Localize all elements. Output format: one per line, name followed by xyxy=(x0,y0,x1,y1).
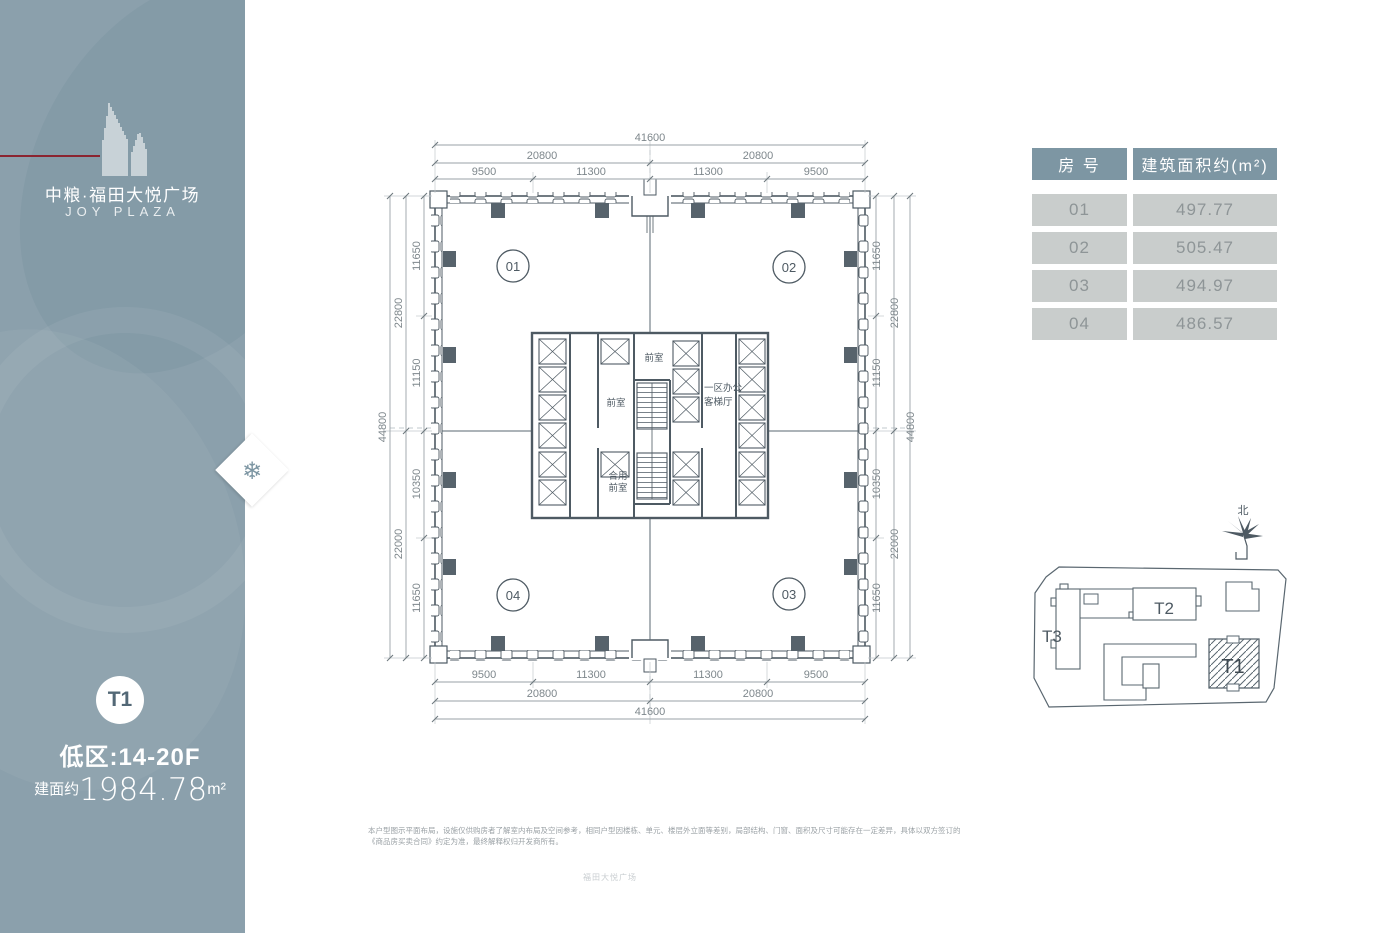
dim-right-mid-1: 22000 xyxy=(889,529,901,560)
podium-block xyxy=(1143,664,1159,688)
window-mullions-right xyxy=(858,211,869,647)
unit-area-table: 房 号 建筑面积约(m²) 01 497.77 02 505.47 03 494… xyxy=(1032,148,1278,346)
dim-top-overall: 41600 xyxy=(635,132,666,144)
table-cell-area: 505.47 xyxy=(1133,232,1277,264)
dim-left-inner-3: 11650 xyxy=(411,583,423,613)
dim-right-mid-0: 22800 xyxy=(889,298,901,329)
dim-bottom-inner-1: 11300 xyxy=(576,669,606,681)
dim-right-inner-0: 11650 xyxy=(871,241,883,271)
dim-bottom-inner-2: 11300 xyxy=(693,669,723,681)
unit-03-label: 03 xyxy=(782,587,796,602)
dim-bottom-mid-0: 20800 xyxy=(527,688,558,700)
north-arrow-icon: 北 xyxy=(1222,504,1263,559)
table-header-area: 建筑面积约(m²) xyxy=(1133,148,1277,180)
tower-t3-label: T3 xyxy=(1042,627,1062,646)
unit-01-label: 01 xyxy=(506,259,520,274)
dim-bottom-inner-3: 9500 xyxy=(804,669,828,681)
footer-note: 福田大悦广场 xyxy=(583,872,637,883)
table-cell-area: 486.57 xyxy=(1133,308,1277,340)
table-row: 04 486.57 xyxy=(1032,308,1278,340)
core-label-shared-front-2: 前室 xyxy=(608,482,627,494)
dim-top-inner-2: 11300 xyxy=(693,166,723,178)
core-label-office-lobby-2: 客梯厅 xyxy=(704,396,733,408)
dim-top-inner-3: 9500 xyxy=(804,166,828,178)
core-label-front-room-top: 前室 xyxy=(644,352,663,364)
dim-bottom-overall: 41600 xyxy=(635,706,666,718)
dim-top-inner-1: 11300 xyxy=(576,166,606,178)
tower-t1-label: T1 xyxy=(1221,656,1244,678)
dim-right-inner-3: 11650 xyxy=(871,583,883,613)
disclaimer-text: 本户型图示平面布局，设施仅供购房者了解室内布局及空间参考，相同户型因楼栋、单元、… xyxy=(368,825,968,847)
core-label-shared-front-1: 合用 xyxy=(608,470,627,482)
table-header-unit: 房 号 xyxy=(1032,148,1127,180)
dim-left-inner-1: 11150 xyxy=(411,359,423,388)
table-cell-area: 497.77 xyxy=(1133,194,1277,226)
dim-left-inner-0: 11650 xyxy=(411,241,423,271)
dim-left-inner-2: 10350 xyxy=(411,469,423,500)
table-cell-unit: 04 xyxy=(1032,308,1127,340)
dim-top-mid-0: 20800 xyxy=(527,150,558,162)
unit-02-label: 02 xyxy=(782,260,796,275)
dim-right-inner-1: 11150 xyxy=(871,359,883,388)
window-mullions-left xyxy=(431,211,442,647)
tower-t2-label: T2 xyxy=(1154,599,1174,618)
service-core: 前室 前室 合用 前室 一区办公 客梯厅 xyxy=(532,333,768,518)
table-cell-unit: 03 xyxy=(1032,270,1127,302)
table-row: 02 505.47 xyxy=(1032,232,1278,264)
dim-top-mid-1: 20800 xyxy=(743,150,774,162)
north-label: 北 xyxy=(1238,504,1249,517)
dim-left-mid-0: 22800 xyxy=(393,298,405,329)
table-row: 01 497.77 xyxy=(1032,194,1278,226)
dim-bottom-inner-0: 9500 xyxy=(472,669,496,681)
table-row: 03 494.97 xyxy=(1032,270,1278,302)
dim-left-overall: 44800 xyxy=(377,412,389,443)
floor-plan-drawing: 前室 前室 合用 前室 一区办公 客梯厅 01 02 03 04 xyxy=(0,0,1400,933)
core-label-front-room-mid: 前室 xyxy=(606,397,625,409)
core-label-office-lobby-1: 一区办公 xyxy=(704,382,743,394)
table-cell-area: 494.97 xyxy=(1133,270,1277,302)
table-cell-unit: 02 xyxy=(1032,232,1127,264)
dim-right-inner-2: 10350 xyxy=(871,469,883,500)
table-cell-unit: 01 xyxy=(1032,194,1127,226)
dim-top-inner-0: 9500 xyxy=(472,166,496,178)
site-plan: T3 T2 T1 北 xyxy=(1034,504,1286,707)
table-header-row: 房 号 建筑面积约(m²) xyxy=(1032,148,1278,180)
dim-bottom-mid-1: 20800 xyxy=(743,688,774,700)
dim-left-mid-1: 22000 xyxy=(393,529,405,560)
unit-04-label: 04 xyxy=(506,588,520,603)
dim-right-overall: 44800 xyxy=(905,412,917,443)
